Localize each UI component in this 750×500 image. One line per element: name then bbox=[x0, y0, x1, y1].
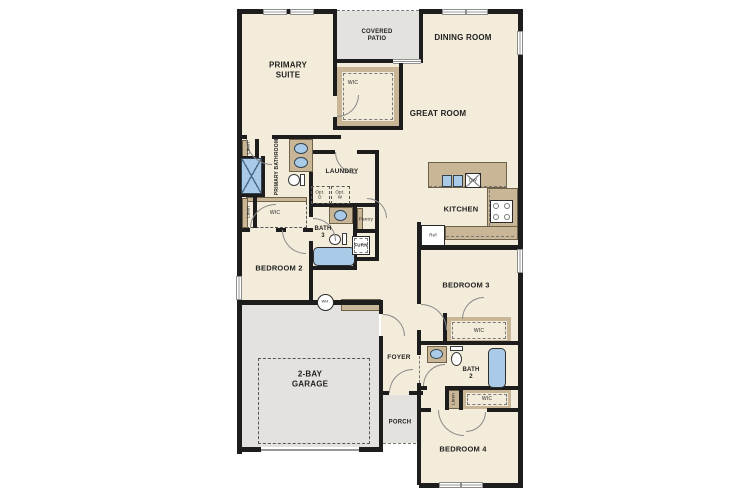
closet-label-pantry: Pantry bbox=[359, 216, 373, 221]
closet-label-wic: WIC bbox=[474, 328, 484, 334]
wall-segment bbox=[313, 150, 335, 154]
wall-segment bbox=[381, 391, 389, 395]
wall-segment bbox=[335, 59, 393, 63]
wall-segment bbox=[421, 386, 427, 390]
wall-segment bbox=[421, 341, 523, 345]
counter-edge-dash bbox=[446, 236, 514, 237]
closet-label-wic: WIC bbox=[482, 396, 492, 402]
kitchen-sink bbox=[442, 175, 452, 187]
window bbox=[466, 9, 488, 15]
porch-edge-dash bbox=[383, 443, 421, 444]
window bbox=[290, 9, 314, 15]
wall-segment bbox=[333, 126, 403, 130]
wall-segment bbox=[421, 408, 431, 412]
garage-door-line bbox=[261, 449, 359, 451]
bathtub bbox=[488, 348, 506, 388]
wall-segment bbox=[417, 222, 421, 304]
window bbox=[517, 31, 523, 55]
appliance-label-wh: WH bbox=[321, 300, 328, 305]
wall-segment bbox=[417, 245, 523, 250]
appliance-label-dw: DW bbox=[469, 177, 477, 182]
sink bbox=[294, 143, 308, 154]
sink bbox=[430, 349, 443, 359]
wall-segment bbox=[487, 408, 523, 412]
shower bbox=[241, 158, 262, 194]
room-label-primary-bathroom: PRIMARY BATHROOM bbox=[274, 139, 280, 195]
wall-segment bbox=[445, 386, 523, 390]
closet-label-linen: Linen bbox=[245, 142, 250, 154]
toilet bbox=[451, 352, 462, 366]
appliance-label-opt-w: Opt. W bbox=[335, 190, 344, 201]
closet-label-wic: WIC bbox=[270, 210, 280, 216]
wall-segment bbox=[333, 14, 337, 63]
room-label-bath-2: BATH 2 bbox=[462, 367, 479, 381]
room-label-laundry: LAUNDRY bbox=[326, 168, 359, 176]
floor-plan: PRIMARY SUITE COVERED PATIO DINING ROOM … bbox=[0, 0, 750, 500]
toilet bbox=[300, 174, 305, 186]
wall-segment bbox=[417, 383, 421, 485]
cased-opening-dash bbox=[419, 356, 420, 383]
wall-segment bbox=[399, 63, 403, 130]
appliance-label-ref: Ref bbox=[429, 232, 437, 237]
room-label-bedroom-3: BEDROOM 3 bbox=[442, 281, 489, 290]
sink bbox=[334, 210, 347, 221]
toilet bbox=[342, 233, 347, 245]
bathtub bbox=[313, 247, 355, 266]
window bbox=[442, 9, 466, 15]
range bbox=[490, 200, 513, 223]
wall-segment bbox=[459, 388, 463, 410]
room-label-garage: 2-BAY GARAGE bbox=[292, 369, 328, 388]
wall-segment bbox=[237, 228, 250, 232]
appliance-label-furn: FURN bbox=[354, 242, 367, 247]
wall-segment bbox=[445, 388, 449, 410]
room-label-great-room: GREAT ROOM bbox=[410, 109, 467, 119]
wall-segment bbox=[237, 9, 337, 14]
room-label-porch: PORCH bbox=[389, 419, 412, 426]
room-label-covered-patio: COVERED PATIO bbox=[361, 29, 392, 43]
window bbox=[263, 9, 287, 15]
wall-segment bbox=[379, 300, 383, 314]
sink bbox=[294, 157, 308, 168]
wall-segment bbox=[333, 63, 337, 96]
closet-label-linen: Linen bbox=[245, 206, 250, 218]
wall-segment bbox=[353, 229, 379, 233]
wall-segment bbox=[237, 447, 261, 452]
wall-segment bbox=[313, 266, 357, 270]
wall-segment bbox=[419, 14, 423, 63]
sliding-door bbox=[393, 59, 421, 64]
patio-roof-dash bbox=[337, 10, 419, 11]
closet-label-linen: Linen bbox=[450, 393, 455, 405]
appliance-label-opt-d: Opt. D bbox=[315, 190, 324, 201]
window bbox=[517, 249, 523, 273]
kitchen-counter-bottom bbox=[445, 226, 518, 240]
window bbox=[461, 482, 483, 488]
window bbox=[236, 276, 242, 300]
wall-segment bbox=[309, 207, 313, 217]
room-label-bedroom-2: BEDROOM 2 bbox=[255, 264, 302, 273]
room-label-dining-room: DINING ROOM bbox=[434, 33, 491, 43]
room-label-foyer: FOYER bbox=[387, 354, 410, 362]
closet-label-wic: WIC bbox=[348, 80, 358, 86]
kitchen-sink bbox=[453, 175, 463, 187]
room-label-kitchen: KITCHEN bbox=[444, 205, 479, 214]
toilet bbox=[450, 346, 463, 351]
room-label-bedroom-4: BEDROOM 4 bbox=[439, 445, 486, 454]
toilet bbox=[288, 174, 300, 186]
room-label-bath-3: BATH 3 bbox=[314, 226, 331, 240]
window bbox=[439, 482, 461, 488]
room-label-primary-suite: PRIMARY SUITE bbox=[269, 60, 307, 79]
